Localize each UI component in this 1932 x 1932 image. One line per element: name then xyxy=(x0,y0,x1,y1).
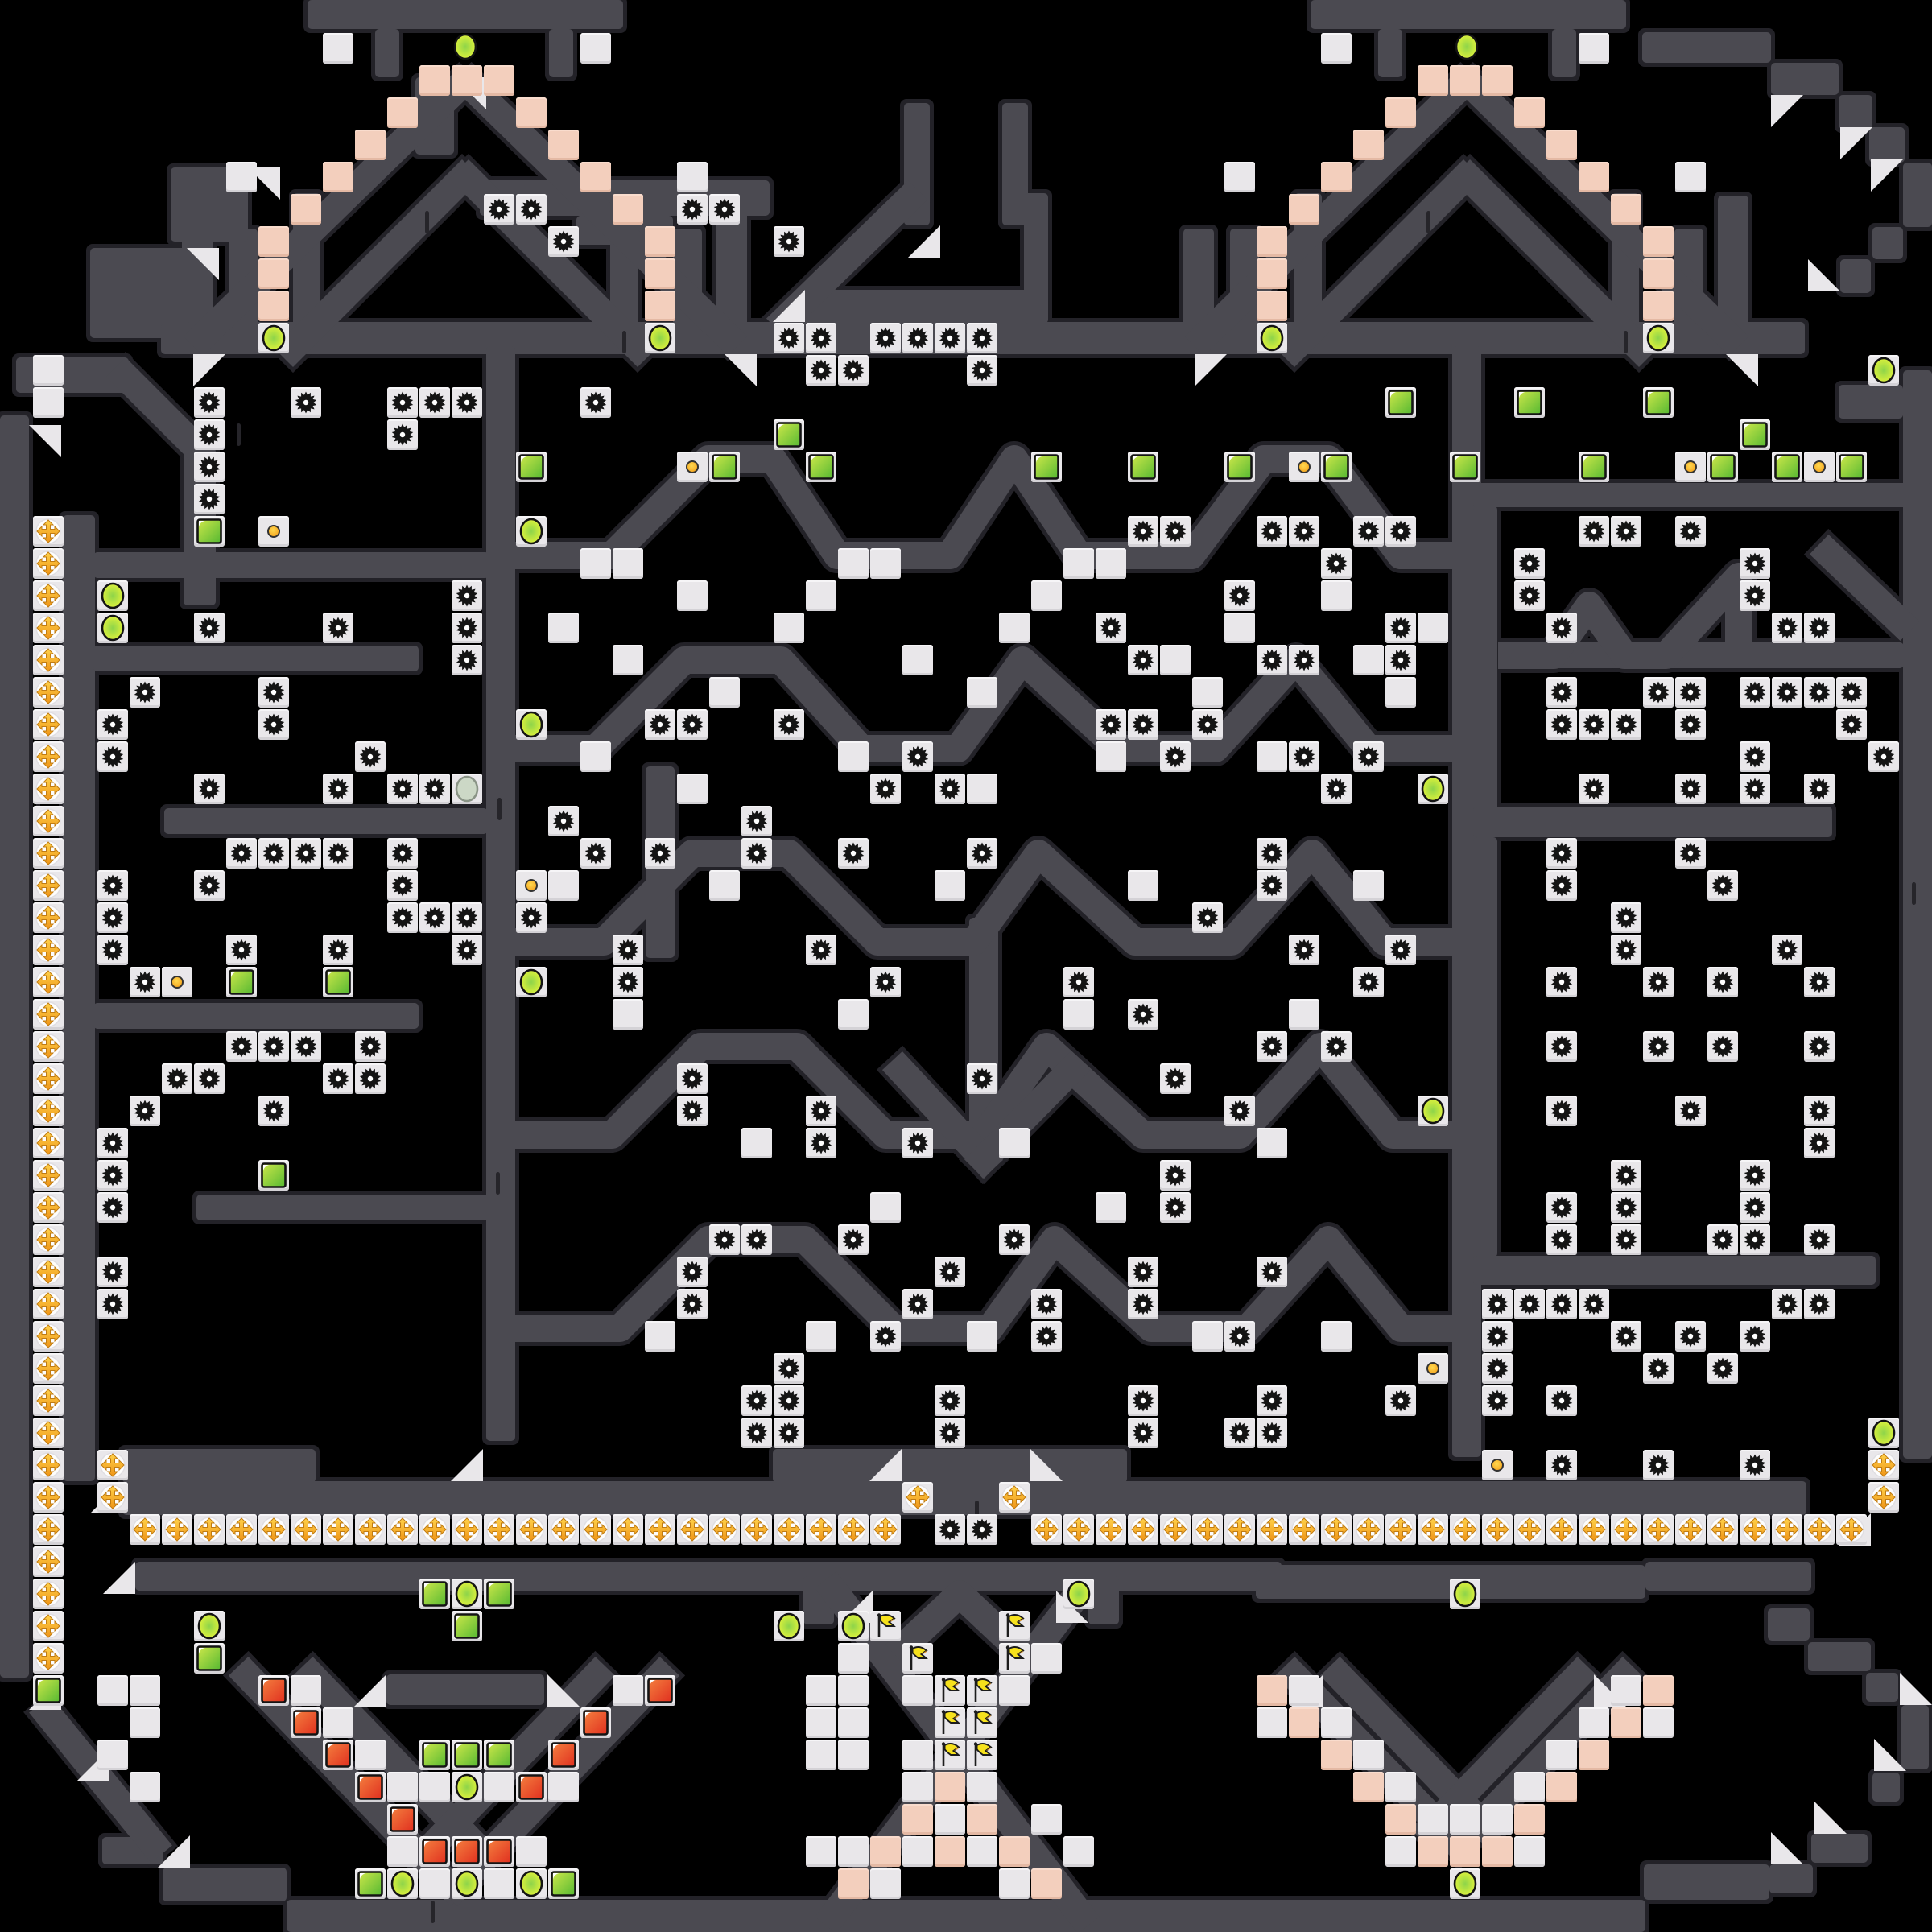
red-card-icon[interactable] xyxy=(419,1835,451,1868)
green-card-icon[interactable] xyxy=(32,1674,64,1707)
move-cross-icon[interactable] xyxy=(32,1578,64,1610)
move-cross-icon[interactable] xyxy=(1224,1513,1256,1546)
move-cross-icon[interactable] xyxy=(32,1030,64,1063)
saw-blade-icon[interactable] xyxy=(386,773,419,805)
saw-blade-icon[interactable] xyxy=(934,1417,966,1449)
green-card-icon[interactable] xyxy=(1739,419,1771,451)
saw-blade-icon[interactable] xyxy=(1803,966,1835,998)
move-cross-icon[interactable] xyxy=(32,934,64,966)
checkpoint-flag-icon[interactable] xyxy=(934,1674,966,1707)
saw-blade-icon[interactable] xyxy=(451,386,483,419)
saw-blade-icon[interactable] xyxy=(612,934,644,966)
small-dot-collectible-icon[interactable] xyxy=(515,869,547,902)
saw-blade-icon[interactable] xyxy=(1578,1288,1610,1320)
saw-blade-icon[interactable] xyxy=(1674,708,1707,741)
move-cross-icon[interactable] xyxy=(32,515,64,547)
saw-blade-icon[interactable] xyxy=(193,773,225,805)
red-card-icon[interactable] xyxy=(322,1739,354,1771)
saw-blade-icon[interactable] xyxy=(386,386,419,419)
saw-blade-icon[interactable] xyxy=(97,708,129,741)
saw-blade-icon[interactable] xyxy=(1674,676,1707,708)
saw-blade-icon[interactable] xyxy=(1256,1256,1288,1288)
saw-blade-icon[interactable] xyxy=(193,386,225,419)
move-cross-icon[interactable] xyxy=(97,1449,129,1481)
checkpoint-flag-icon[interactable] xyxy=(998,1610,1030,1642)
saw-blade-icon[interactable] xyxy=(1642,1030,1674,1063)
saw-blade-icon[interactable] xyxy=(1610,934,1642,966)
saw-blade-icon[interactable] xyxy=(902,1288,934,1320)
move-cross-icon[interactable] xyxy=(1417,1513,1449,1546)
checkpoint-flag-icon[interactable] xyxy=(934,1739,966,1771)
saw-blade-icon[interactable] xyxy=(97,1127,129,1159)
saw-blade-icon[interactable] xyxy=(419,386,451,419)
green-card-icon[interactable] xyxy=(1771,451,1803,483)
move-cross-icon[interactable] xyxy=(32,1417,64,1449)
move-cross-icon[interactable] xyxy=(612,1513,644,1546)
saw-blade-icon[interactable] xyxy=(1739,773,1771,805)
saw-blade-icon[interactable] xyxy=(1578,708,1610,741)
move-cross-icon[interactable] xyxy=(869,1513,902,1546)
move-cross-icon[interactable] xyxy=(32,1546,64,1578)
saw-blade-icon[interactable] xyxy=(1739,1159,1771,1191)
move-cross-icon[interactable] xyxy=(32,773,64,805)
saw-blade-icon[interactable] xyxy=(193,1063,225,1095)
saw-blade-icon[interactable] xyxy=(773,708,805,741)
red-card-icon[interactable] xyxy=(547,1739,580,1771)
red-card-icon[interactable] xyxy=(290,1707,322,1739)
saw-blade-icon[interactable] xyxy=(1095,612,1127,644)
move-cross-icon[interactable] xyxy=(32,1449,64,1481)
red-card-icon[interactable] xyxy=(644,1674,676,1707)
saw-blade-icon[interactable] xyxy=(1674,773,1707,805)
saw-blade-icon[interactable] xyxy=(580,386,612,419)
green-card-icon[interactable] xyxy=(1449,451,1481,483)
small-dot-collectible-icon[interactable] xyxy=(676,451,708,483)
saw-blade-icon[interactable] xyxy=(1352,741,1385,773)
checkpoint-flag-icon[interactable] xyxy=(902,1642,934,1674)
move-cross-icon[interactable] xyxy=(32,902,64,934)
move-cross-icon[interactable] xyxy=(322,1513,354,1546)
green-card-icon[interactable] xyxy=(322,966,354,998)
saw-blade-icon[interactable] xyxy=(1546,1288,1578,1320)
move-cross-icon[interactable] xyxy=(773,1513,805,1546)
saw-blade-icon[interactable] xyxy=(1224,1095,1256,1127)
move-cross-icon[interactable] xyxy=(32,1224,64,1256)
saw-blade-icon[interactable] xyxy=(580,837,612,869)
move-cross-icon[interactable] xyxy=(97,1481,129,1513)
saw-blade-icon[interactable] xyxy=(1803,1288,1835,1320)
move-cross-icon[interactable] xyxy=(1707,1513,1739,1546)
move-cross-icon[interactable] xyxy=(225,1513,258,1546)
saw-blade-icon[interactable] xyxy=(1320,1030,1352,1063)
saw-blade-icon[interactable] xyxy=(1674,1095,1707,1127)
move-cross-icon[interactable] xyxy=(1835,1513,1868,1546)
small-dot-collectible-icon[interactable] xyxy=(1481,1449,1513,1481)
saw-blade-icon[interactable] xyxy=(1803,1095,1835,1127)
move-cross-icon[interactable] xyxy=(1674,1513,1707,1546)
green-card-icon[interactable] xyxy=(483,1578,515,1610)
small-dot-collectible-icon[interactable] xyxy=(161,966,193,998)
saw-blade-icon[interactable] xyxy=(193,612,225,644)
saw-blade-icon[interactable] xyxy=(676,193,708,225)
saw-blade-icon[interactable] xyxy=(934,1256,966,1288)
saw-blade-icon[interactable] xyxy=(1610,902,1642,934)
green-card-icon[interactable] xyxy=(419,1739,451,1771)
orb-collectible-icon[interactable] xyxy=(515,1868,547,1900)
saw-blade-icon[interactable] xyxy=(741,1385,773,1417)
green-card-icon[interactable] xyxy=(193,1642,225,1674)
saw-blade-icon[interactable] xyxy=(97,1288,129,1320)
saw-blade-icon[interactable] xyxy=(451,580,483,612)
move-cross-icon[interactable] xyxy=(1546,1513,1578,1546)
move-cross-icon[interactable] xyxy=(1352,1513,1385,1546)
saw-blade-icon[interactable] xyxy=(1191,708,1224,741)
move-cross-icon[interactable] xyxy=(998,1481,1030,1513)
saw-blade-icon[interactable] xyxy=(322,612,354,644)
saw-blade-icon[interactable] xyxy=(1127,1288,1159,1320)
saw-blade-icon[interactable] xyxy=(515,193,547,225)
move-cross-icon[interactable] xyxy=(32,966,64,998)
saw-blade-icon[interactable] xyxy=(1546,1449,1578,1481)
saw-blade-icon[interactable] xyxy=(1256,515,1288,547)
saw-blade-icon[interactable] xyxy=(837,354,869,386)
saw-blade-icon[interactable] xyxy=(934,1513,966,1546)
saw-blade-icon[interactable] xyxy=(322,1063,354,1095)
orb-collectible-icon[interactable] xyxy=(97,580,129,612)
saw-blade-icon[interactable] xyxy=(1352,966,1385,998)
move-cross-icon[interactable] xyxy=(902,1481,934,1513)
saw-blade-icon[interactable] xyxy=(773,322,805,354)
saw-blade-icon[interactable] xyxy=(676,1256,708,1288)
saw-blade-icon[interactable] xyxy=(1224,1320,1256,1352)
saw-blade-icon[interactable] xyxy=(1610,1320,1642,1352)
move-cross-icon[interactable] xyxy=(32,1095,64,1127)
red-card-icon[interactable] xyxy=(515,1771,547,1803)
saw-blade-icon[interactable] xyxy=(193,419,225,451)
saw-blade-icon[interactable] xyxy=(612,966,644,998)
saw-blade-icon[interactable] xyxy=(837,837,869,869)
saw-blade-icon[interactable] xyxy=(966,322,998,354)
saw-blade-icon[interactable] xyxy=(644,837,676,869)
move-cross-icon[interactable] xyxy=(1191,1513,1224,1546)
saw-blade-icon[interactable] xyxy=(1256,1385,1288,1417)
saw-blade-icon[interactable] xyxy=(1159,1159,1191,1191)
saw-blade-icon[interactable] xyxy=(1030,1288,1063,1320)
saw-blade-icon[interactable] xyxy=(129,966,161,998)
move-cross-icon[interactable] xyxy=(32,1385,64,1417)
orb-collectible-icon[interactable] xyxy=(1868,1417,1900,1449)
saw-blade-icon[interactable] xyxy=(1256,644,1288,676)
saw-blade-icon[interactable] xyxy=(1481,1320,1513,1352)
saw-blade-icon[interactable] xyxy=(805,1095,837,1127)
saw-blade-icon[interactable] xyxy=(1385,515,1417,547)
saw-blade-icon[interactable] xyxy=(1513,547,1546,580)
saw-blade-icon[interactable] xyxy=(1546,869,1578,902)
saw-blade-icon[interactable] xyxy=(322,773,354,805)
small-dot-collectible-icon[interactable] xyxy=(1288,451,1320,483)
small-dot-collectible-icon[interactable] xyxy=(258,515,290,547)
saw-blade-icon[interactable] xyxy=(966,1063,998,1095)
move-cross-icon[interactable] xyxy=(32,1256,64,1288)
saw-blade-icon[interactable] xyxy=(741,805,773,837)
saw-blade-icon[interactable] xyxy=(773,1417,805,1449)
move-cross-icon[interactable] xyxy=(1063,1513,1095,1546)
saw-blade-icon[interactable] xyxy=(1771,676,1803,708)
saw-blade-icon[interactable] xyxy=(97,902,129,934)
saw-blade-icon[interactable] xyxy=(386,837,419,869)
move-cross-icon[interactable] xyxy=(32,1320,64,1352)
saw-blade-icon[interactable] xyxy=(129,676,161,708)
saw-blade-icon[interactable] xyxy=(1288,934,1320,966)
saw-blade-icon[interactable] xyxy=(1481,1352,1513,1385)
small-dot-collectible-icon[interactable] xyxy=(1803,451,1835,483)
saw-blade-icon[interactable] xyxy=(1127,998,1159,1030)
move-cross-icon[interactable] xyxy=(32,869,64,902)
saw-blade-icon[interactable] xyxy=(225,934,258,966)
move-cross-icon[interactable] xyxy=(419,1513,451,1546)
saw-blade-icon[interactable] xyxy=(1610,1191,1642,1224)
saw-blade-icon[interactable] xyxy=(515,902,547,934)
saw-blade-icon[interactable] xyxy=(1320,773,1352,805)
saw-blade-icon[interactable] xyxy=(1546,966,1578,998)
saw-blade-icon[interactable] xyxy=(1127,1385,1159,1417)
saw-blade-icon[interactable] xyxy=(1127,708,1159,741)
red-card-icon[interactable] xyxy=(258,1674,290,1707)
move-cross-icon[interactable] xyxy=(1610,1513,1642,1546)
saw-blade-icon[interactable] xyxy=(1739,1224,1771,1256)
saw-blade-icon[interactable] xyxy=(1578,773,1610,805)
saw-blade-icon[interactable] xyxy=(644,708,676,741)
green-card-icon[interactable] xyxy=(483,1739,515,1771)
green-card-icon[interactable] xyxy=(1320,451,1352,483)
saw-blade-icon[interactable] xyxy=(773,225,805,258)
green-card-icon[interactable] xyxy=(451,1610,483,1642)
move-cross-icon[interactable] xyxy=(580,1513,612,1546)
saw-blade-icon[interactable] xyxy=(1385,1385,1417,1417)
move-cross-icon[interactable] xyxy=(129,1513,161,1546)
saw-blade-icon[interactable] xyxy=(97,741,129,773)
small-dot-collectible-icon[interactable] xyxy=(1674,451,1707,483)
move-cross-icon[interactable] xyxy=(451,1513,483,1546)
saw-blade-icon[interactable] xyxy=(805,1127,837,1159)
move-cross-icon[interactable] xyxy=(1159,1513,1191,1546)
saw-blade-icon[interactable] xyxy=(1063,966,1095,998)
green-card-icon[interactable] xyxy=(805,451,837,483)
saw-blade-icon[interactable] xyxy=(1030,1320,1063,1352)
saw-blade-icon[interactable] xyxy=(1546,1224,1578,1256)
saw-blade-icon[interactable] xyxy=(193,869,225,902)
saw-blade-icon[interactable] xyxy=(1385,934,1417,966)
saw-blade-icon[interactable] xyxy=(869,773,902,805)
saw-blade-icon[interactable] xyxy=(1546,708,1578,741)
saw-blade-icon[interactable] xyxy=(354,1030,386,1063)
orb-collectible-icon[interactable] xyxy=(1449,1578,1481,1610)
saw-blade-icon[interactable] xyxy=(1707,1352,1739,1385)
saw-blade-icon[interactable] xyxy=(934,773,966,805)
saw-blade-icon[interactable] xyxy=(869,1320,902,1352)
move-cross-icon[interactable] xyxy=(32,547,64,580)
move-cross-icon[interactable] xyxy=(1320,1513,1352,1546)
move-cross-icon[interactable] xyxy=(1481,1513,1513,1546)
saw-blade-icon[interactable] xyxy=(1642,1352,1674,1385)
move-cross-icon[interactable] xyxy=(837,1513,869,1546)
orb-collectible-icon[interactable] xyxy=(1256,322,1288,354)
saw-blade-icon[interactable] xyxy=(902,741,934,773)
green-card-icon[interactable] xyxy=(354,1868,386,1900)
saw-blade-icon[interactable] xyxy=(97,1159,129,1191)
saw-blade-icon[interactable] xyxy=(1320,547,1352,580)
saw-blade-icon[interactable] xyxy=(1546,1191,1578,1224)
saw-blade-icon[interactable] xyxy=(419,902,451,934)
move-cross-icon[interactable] xyxy=(32,1288,64,1320)
saw-blade-icon[interactable] xyxy=(741,1417,773,1449)
saw-blade-icon[interactable] xyxy=(1674,837,1707,869)
green-card-icon[interactable] xyxy=(515,451,547,483)
saw-blade-icon[interactable] xyxy=(1546,1030,1578,1063)
move-cross-icon[interactable] xyxy=(708,1513,741,1546)
checkpoint-flag-icon[interactable] xyxy=(966,1739,998,1771)
saw-blade-icon[interactable] xyxy=(1739,580,1771,612)
saw-blade-icon[interactable] xyxy=(1191,902,1224,934)
green-card-icon[interactable] xyxy=(1707,451,1739,483)
saw-blade-icon[interactable] xyxy=(258,676,290,708)
saw-blade-icon[interactable] xyxy=(1481,1385,1513,1417)
saw-blade-icon[interactable] xyxy=(1674,1320,1707,1352)
saw-blade-icon[interactable] xyxy=(741,1224,773,1256)
move-cross-icon[interactable] xyxy=(1256,1513,1288,1546)
saw-blade-icon[interactable] xyxy=(1739,741,1771,773)
move-cross-icon[interactable] xyxy=(32,1610,64,1642)
saw-blade-icon[interactable] xyxy=(354,741,386,773)
move-cross-icon[interactable] xyxy=(1642,1513,1674,1546)
move-cross-icon[interactable] xyxy=(1288,1513,1320,1546)
checkpoint-flag-icon[interactable] xyxy=(934,1707,966,1739)
saw-blade-icon[interactable] xyxy=(1513,580,1546,612)
saw-blade-icon[interactable] xyxy=(1578,515,1610,547)
move-cross-icon[interactable] xyxy=(193,1513,225,1546)
move-cross-icon[interactable] xyxy=(32,708,64,741)
move-cross-icon[interactable] xyxy=(1868,1449,1900,1481)
saw-blade-icon[interactable] xyxy=(1127,1417,1159,1449)
saw-blade-icon[interactable] xyxy=(322,934,354,966)
move-cross-icon[interactable] xyxy=(258,1513,290,1546)
saw-blade-icon[interactable] xyxy=(1803,773,1835,805)
saw-blade-icon[interactable] xyxy=(934,322,966,354)
red-card-icon[interactable] xyxy=(386,1803,419,1835)
green-card-icon[interactable] xyxy=(1642,386,1674,419)
orb-collectible-icon[interactable] xyxy=(515,966,547,998)
saw-blade-icon[interactable] xyxy=(1642,966,1674,998)
saw-blade-icon[interactable] xyxy=(1256,837,1288,869)
green-card-icon[interactable] xyxy=(1224,451,1256,483)
saw-blade-icon[interactable] xyxy=(290,837,322,869)
saw-blade-icon[interactable] xyxy=(741,837,773,869)
checkpoint-flag-icon[interactable] xyxy=(966,1674,998,1707)
saw-blade-icon[interactable] xyxy=(902,322,934,354)
saw-blade-icon[interactable] xyxy=(1546,1385,1578,1417)
saw-blade-icon[interactable] xyxy=(1771,1288,1803,1320)
saw-blade-icon[interactable] xyxy=(773,1385,805,1417)
green-card-icon[interactable] xyxy=(225,966,258,998)
red-card-icon[interactable] xyxy=(483,1835,515,1868)
move-cross-icon[interactable] xyxy=(483,1513,515,1546)
saw-blade-icon[interactable] xyxy=(1159,741,1191,773)
orb-collectible-icon[interactable] xyxy=(451,1868,483,1900)
saw-blade-icon[interactable] xyxy=(1803,1030,1835,1063)
move-cross-icon[interactable] xyxy=(32,741,64,773)
move-cross-icon[interactable] xyxy=(1739,1513,1771,1546)
green-card-icon[interactable] xyxy=(1578,451,1610,483)
move-cross-icon[interactable] xyxy=(32,1352,64,1385)
saw-blade-icon[interactable] xyxy=(1739,1191,1771,1224)
saw-blade-icon[interactable] xyxy=(869,966,902,998)
saw-blade-icon[interactable] xyxy=(1707,1030,1739,1063)
red-card-icon[interactable] xyxy=(580,1707,612,1739)
saw-blade-icon[interactable] xyxy=(451,902,483,934)
saw-blade-icon[interactable] xyxy=(1224,1417,1256,1449)
move-cross-icon[interactable] xyxy=(1030,1513,1063,1546)
green-card-icon[interactable] xyxy=(1513,386,1546,419)
move-cross-icon[interactable] xyxy=(1868,1481,1900,1513)
saw-blade-icon[interactable] xyxy=(1352,515,1385,547)
saw-blade-icon[interactable] xyxy=(258,708,290,741)
orb-collectible-icon[interactable] xyxy=(193,1610,225,1642)
move-cross-icon[interactable] xyxy=(32,1513,64,1546)
saw-blade-icon[interactable] xyxy=(1642,1449,1674,1481)
saw-blade-icon[interactable] xyxy=(258,1030,290,1063)
saw-blade-icon[interactable] xyxy=(290,386,322,419)
saw-blade-icon[interactable] xyxy=(1481,1288,1513,1320)
saw-blade-icon[interactable] xyxy=(547,805,580,837)
saw-blade-icon[interactable] xyxy=(451,612,483,644)
saw-blade-icon[interactable] xyxy=(1642,676,1674,708)
saw-blade-icon[interactable] xyxy=(934,1385,966,1417)
orb-collectible-icon[interactable] xyxy=(1642,322,1674,354)
saw-blade-icon[interactable] xyxy=(386,902,419,934)
green-card-icon[interactable] xyxy=(1030,451,1063,483)
saw-blade-icon[interactable] xyxy=(1739,1449,1771,1481)
saw-blade-icon[interactable] xyxy=(1803,676,1835,708)
saw-blade-icon[interactable] xyxy=(676,1095,708,1127)
saw-blade-icon[interactable] xyxy=(129,1095,161,1127)
move-cross-icon[interactable] xyxy=(676,1513,708,1546)
saw-blade-icon[interactable] xyxy=(902,1127,934,1159)
saw-blade-icon[interactable] xyxy=(483,193,515,225)
saw-blade-icon[interactable] xyxy=(966,354,998,386)
green-card-icon[interactable] xyxy=(1385,386,1417,419)
orb-collectible-icon[interactable] xyxy=(773,1610,805,1642)
move-cross-icon[interactable] xyxy=(1803,1513,1835,1546)
checkpoint-flag-icon[interactable] xyxy=(966,1707,998,1739)
orb-collectible-icon[interactable] xyxy=(515,515,547,547)
move-cross-icon[interactable] xyxy=(354,1513,386,1546)
saw-blade-icon[interactable] xyxy=(805,322,837,354)
move-cross-icon[interactable] xyxy=(290,1513,322,1546)
saw-blade-icon[interactable] xyxy=(258,1095,290,1127)
move-cross-icon[interactable] xyxy=(1385,1513,1417,1546)
green-card-icon[interactable] xyxy=(708,451,741,483)
saw-blade-icon[interactable] xyxy=(1546,676,1578,708)
saw-blade-icon[interactable] xyxy=(1610,515,1642,547)
saw-blade-icon[interactable] xyxy=(1610,708,1642,741)
saw-blade-icon[interactable] xyxy=(161,1063,193,1095)
saw-blade-icon[interactable] xyxy=(1513,1288,1546,1320)
saw-blade-icon[interactable] xyxy=(998,1224,1030,1256)
green-card-icon[interactable] xyxy=(258,1159,290,1191)
orb-collectible-icon[interactable] xyxy=(451,1578,483,1610)
orb-collectible-icon[interactable] xyxy=(837,1610,869,1642)
saw-blade-icon[interactable] xyxy=(1771,612,1803,644)
